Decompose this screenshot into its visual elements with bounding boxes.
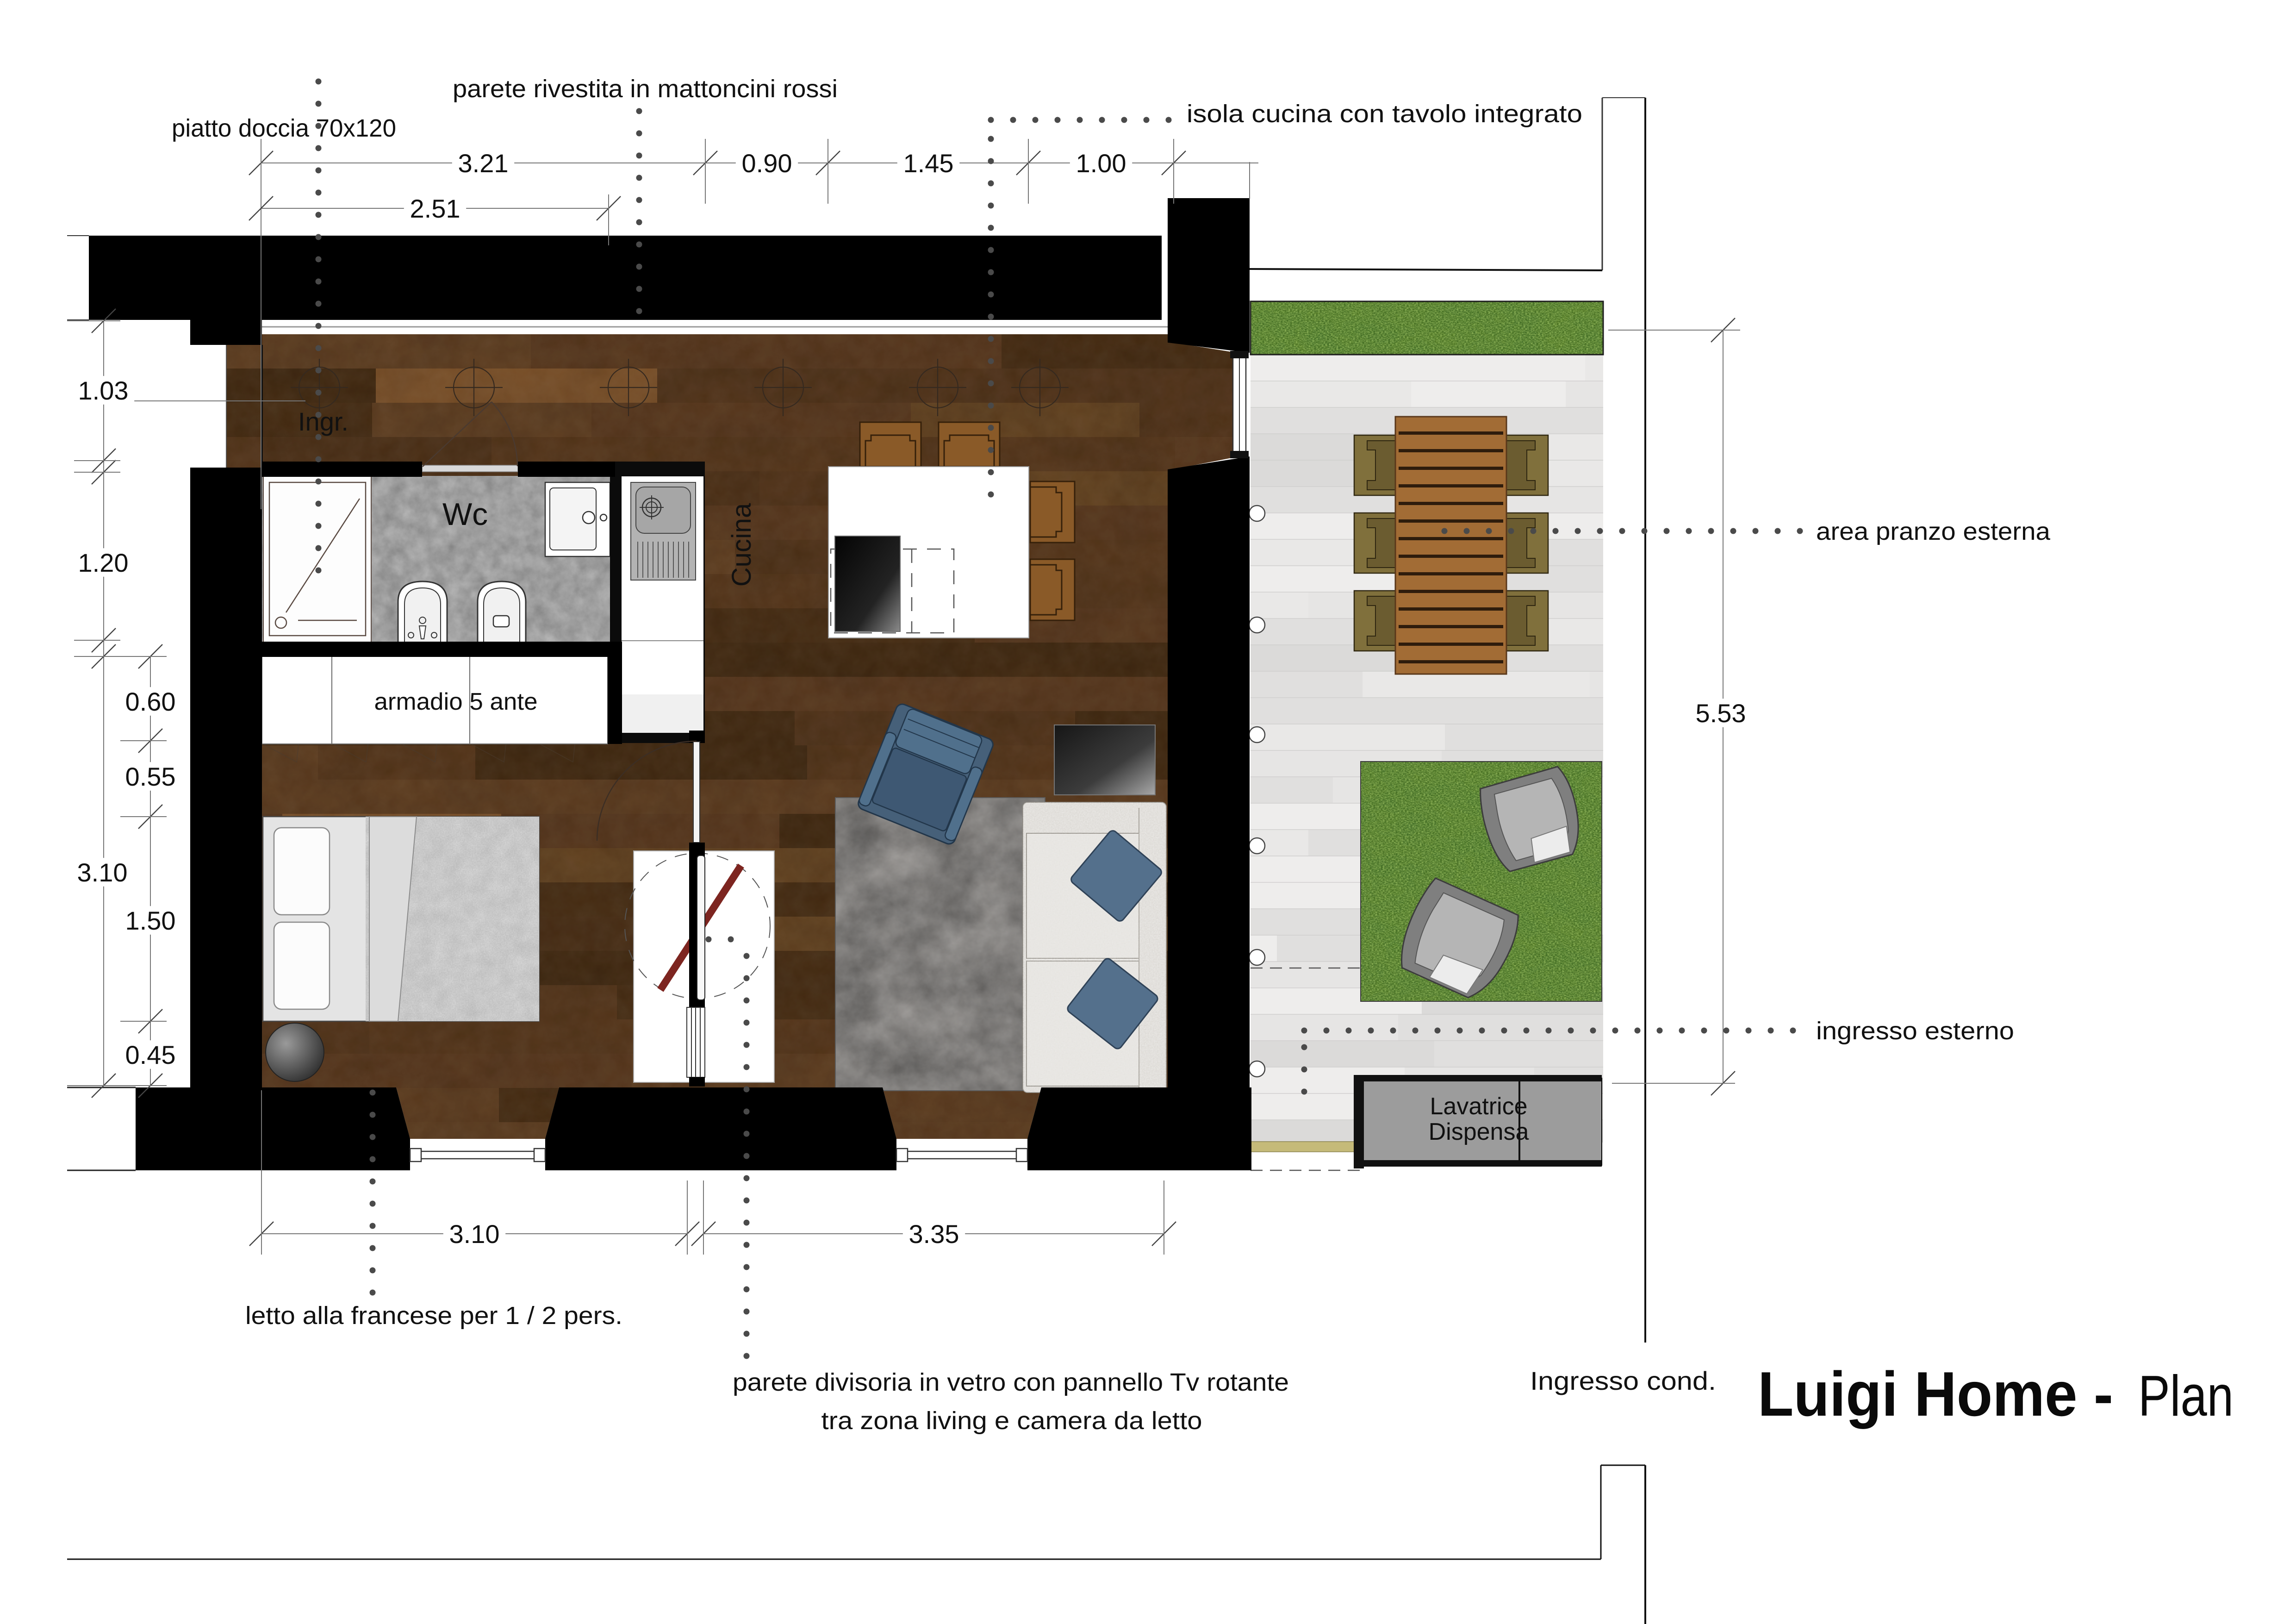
svg-text:0.45: 0.45 [125, 1040, 176, 1069]
svg-text:Wc: Wc [442, 497, 488, 532]
svg-text:Lavatrice: Lavatrice [1430, 1093, 1528, 1120]
svg-text:3.35: 3.35 [909, 1219, 959, 1249]
svg-text:1.03: 1.03 [78, 376, 129, 405]
svg-text:isola cucina con tavolo integr: isola cucina con tavolo integrato [1187, 100, 1582, 128]
svg-text:0.55: 0.55 [125, 762, 176, 791]
svg-text:Ingresso cond.: Ingresso cond. [1530, 1366, 1716, 1395]
svg-text:tra zona living e camera da le: tra zona living e camera da letto [821, 1407, 1202, 1435]
svg-text:3.21: 3.21 [458, 149, 509, 178]
svg-text:2.51: 2.51 [410, 194, 460, 223]
svg-text:0.60: 0.60 [125, 687, 176, 716]
svg-text:ingresso esterno: ingresso esterno [1816, 1017, 2014, 1045]
svg-text:piatto doccia 70x120: piatto doccia 70x120 [172, 114, 396, 142]
svg-text:letto alla francese per 1 / 2: letto alla francese per 1 / 2 pers. [245, 1302, 622, 1330]
svg-text:1.50: 1.50 [125, 906, 176, 935]
svg-text:Plan: Plan [2138, 1364, 2234, 1428]
svg-text:Luigi Home -: Luigi Home - [1758, 1359, 2113, 1429]
svg-text:Dispensa: Dispensa [1429, 1118, 1529, 1145]
svg-text:5.53: 5.53 [1696, 699, 1746, 728]
svg-text:armadio 5 ante: armadio 5 ante [374, 688, 538, 715]
svg-text:1.20: 1.20 [78, 548, 129, 577]
svg-text:Cucina: Cucina [727, 503, 757, 587]
svg-text:parete divisoria in vetro con: parete divisoria in vetro con pannello T… [733, 1368, 1289, 1396]
svg-text:Ingr.: Ingr. [298, 407, 348, 436]
svg-text:area pranzo esterna: area pranzo esterna [1816, 518, 2051, 545]
svg-text:1.00: 1.00 [1076, 149, 1126, 178]
svg-text:parete rivestita in mattoncini: parete rivestita in mattoncini rossi [453, 75, 838, 103]
svg-text:0.90: 0.90 [742, 149, 792, 178]
svg-text:1.45: 1.45 [903, 149, 954, 178]
svg-text:3.10: 3.10 [449, 1219, 500, 1249]
svg-text:3.10: 3.10 [77, 858, 128, 887]
